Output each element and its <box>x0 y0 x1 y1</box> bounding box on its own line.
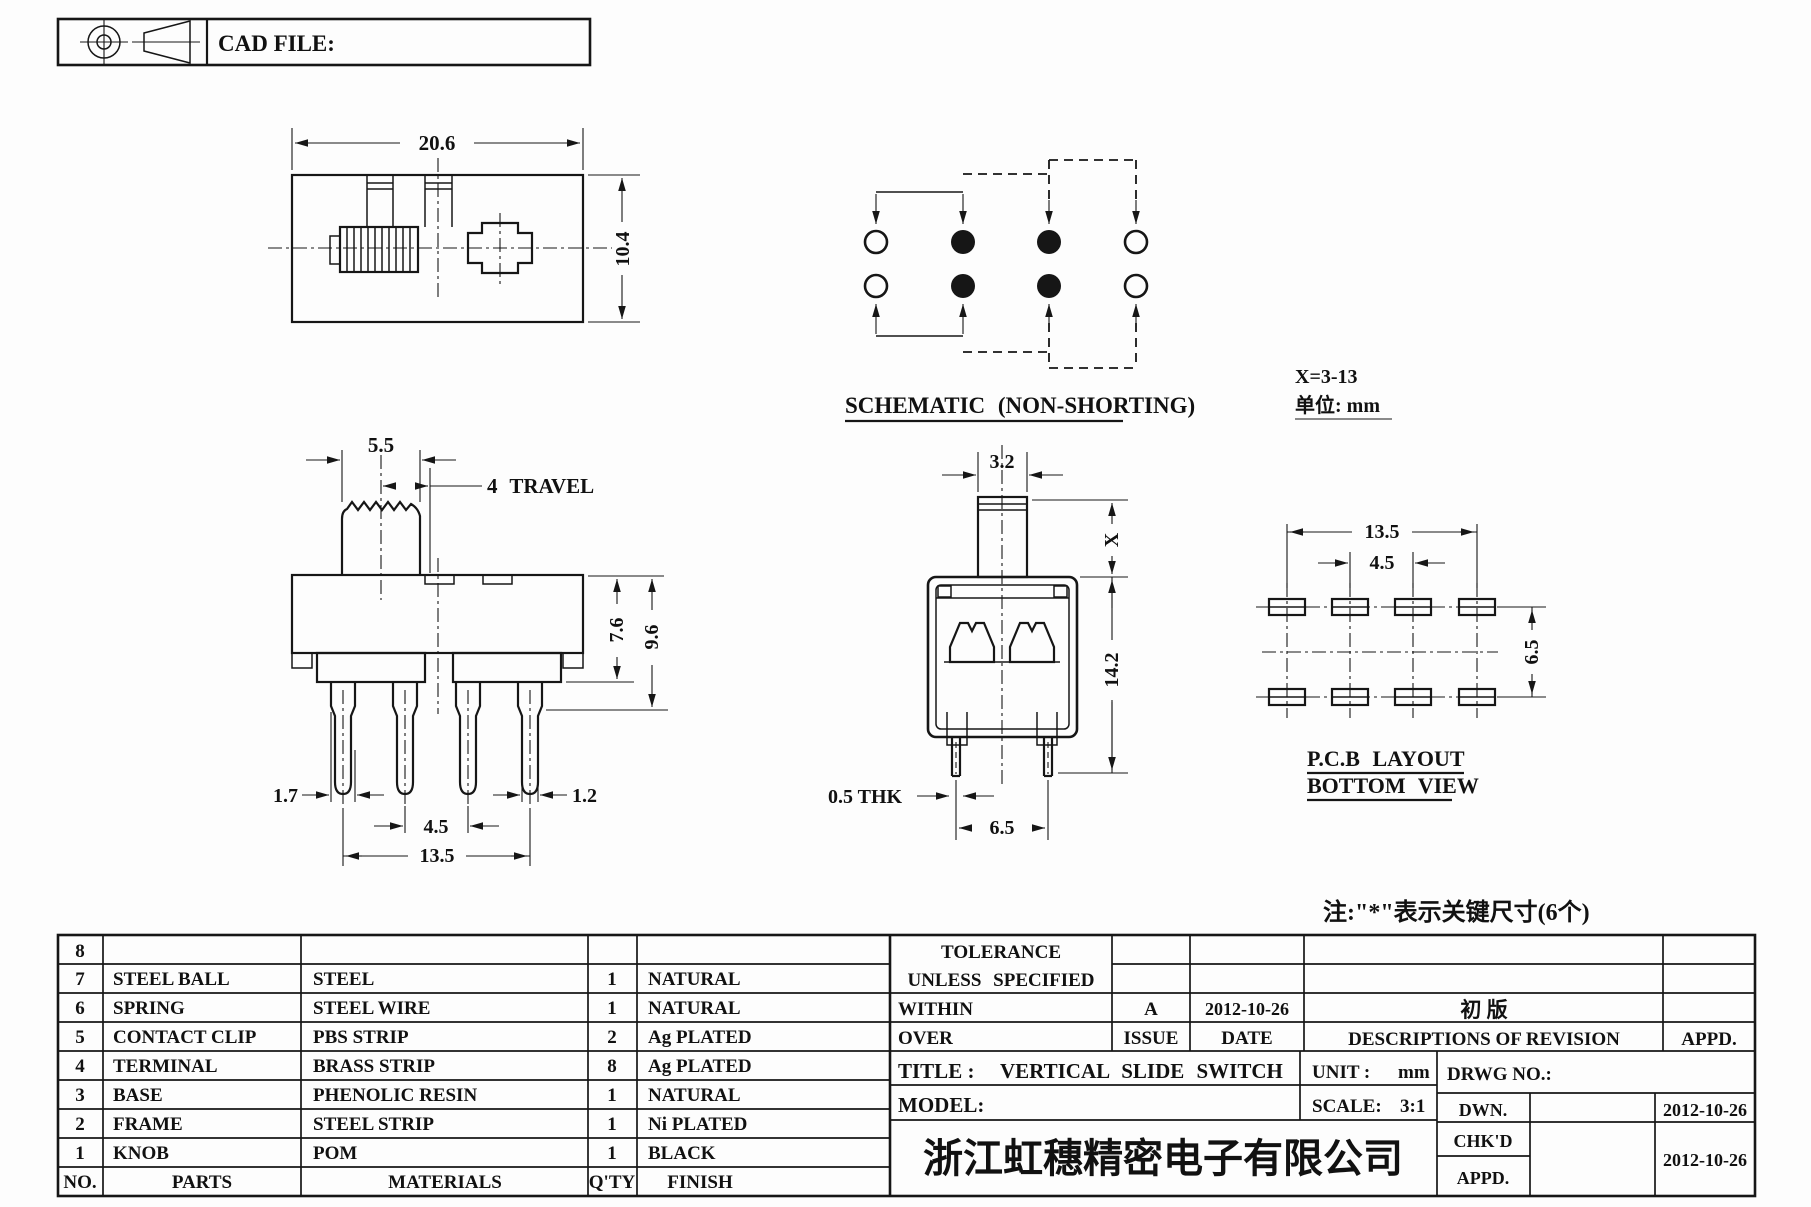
header-materials: MATERIALS <box>388 1172 502 1193</box>
header-parts: PARTS <box>172 1172 232 1193</box>
cell-finish: NATURAL <box>648 1085 741 1106</box>
table-row: 2 FRAME STEEL STRIP 1 Ni PLATED <box>75 1114 747 1135</box>
dim-top-height: 10.4 <box>612 232 634 267</box>
actuator-slot <box>367 175 452 227</box>
table-header-row: NO. PARTS MATERIALS Q'TY FINISH <box>63 1172 733 1193</box>
cell-finish: NATURAL <box>648 969 741 990</box>
title-value: VERTICAL SLIDE SWITCH <box>1000 1059 1283 1083</box>
title-label: TITLE : <box>898 1059 974 1083</box>
dim-knob-height-x: X <box>1101 532 1123 547</box>
parts-table: 8 7 STEEL BALL STEEL 1 NATURAL 6 SPRING … <box>63 941 751 1193</box>
chkd-label: CHK'D <box>1453 1131 1512 1151</box>
first-angle-projection-icon <box>80 20 200 64</box>
dim-travel: 4 TRAVEL <box>487 474 594 498</box>
unit-value: mm <box>1398 1062 1430 1083</box>
tolerance-within: WITHIN <box>898 999 973 1020</box>
tolerance-line2: UNLESS SPECIFIED <box>907 970 1094 991</box>
cell-no: 7 <box>75 969 85 990</box>
tolerance-over: OVER <box>898 1028 953 1049</box>
dim-side-pin-spacing: 6.5 <box>990 817 1015 839</box>
dim-pin-left: 1.7 <box>273 785 298 807</box>
cell-parts: BASE <box>113 1085 163 1106</box>
cell-qty: 1 <box>607 1143 617 1164</box>
model-label: MODEL: <box>898 1093 984 1117</box>
cell-parts: FRAME <box>113 1114 183 1135</box>
header-box: CAD FILE: <box>58 19 590 65</box>
revision-issue-value: A <box>1144 999 1158 1020</box>
pcb-title-line2: BOTTOM VIEW <box>1307 773 1479 798</box>
dim-body-height: 7.6 <box>606 618 628 643</box>
cell-no: 2 <box>75 1114 85 1135</box>
dwn-label: DWN. <box>1459 1100 1508 1120</box>
unit-label: UNIT : <box>1312 1062 1370 1083</box>
cell-finish: Ag PLATED <box>648 1056 752 1077</box>
table-row: 6 SPRING STEEL WIRE 1 NATURAL <box>75 998 740 1019</box>
cell-qty: 8 <box>607 1056 617 1077</box>
scale-label: SCALE: <box>1312 1096 1382 1117</box>
cell-parts: CONTACT CLIP <box>113 1027 257 1048</box>
cell-materials: STEEL WIRE <box>313 998 430 1019</box>
table-row: 4 TERMINAL BRASS STRIP 8 Ag PLATED <box>75 1056 751 1077</box>
schematic-terminals <box>865 230 1147 298</box>
appd-label: APPD. <box>1457 1168 1510 1188</box>
cell-no: 4 <box>75 1056 85 1077</box>
engineering-drawing-sheet: CAD FILE: 20.6 <box>0 0 1811 1207</box>
tolerance-line1: TOLERANCE <box>941 942 1061 963</box>
cell-finish: NATURAL <box>648 998 741 1019</box>
cell-qty: 1 <box>607 1114 617 1135</box>
cell-no: 6 <box>75 998 85 1019</box>
revision-description: 初 版 <box>1460 998 1507 1022</box>
unit-note: 单位: mm <box>1295 393 1380 417</box>
cell-qty: 1 <box>607 1085 617 1106</box>
dim-terminal-thickness: 0.5 THK <box>828 786 903 808</box>
revision-header: DESCRIPTIONS OF REVISION <box>1348 1029 1620 1050</box>
title-block: TOLERANCE UNLESS SPECIFIED WITHIN OVER A… <box>898 942 1747 1188</box>
dim-pcb-row-spacing: 6.5 <box>1521 640 1543 665</box>
cell-materials: PHENOLIC RESIN <box>313 1085 477 1106</box>
cell-parts: SPRING <box>113 998 185 1019</box>
cell-no: 3 <box>75 1085 85 1106</box>
table-row: 1 KNOB POM 1 BLACK <box>75 1143 716 1164</box>
table-row: 5 CONTACT CLIP PBS STRIP 2 Ag PLATED <box>75 1027 751 1048</box>
cell-materials: STEEL <box>313 969 374 990</box>
revision-issue-label: ISSUE <box>1124 1028 1179 1049</box>
dim-pin-span: 13.5 <box>420 845 455 867</box>
cell-parts: STEEL BALL <box>113 969 230 990</box>
dim-knob-width: 5.5 <box>368 433 394 457</box>
table-row: 8 <box>75 941 85 962</box>
schematic-title: SCHEMATIC (NON-SHORTING) <box>845 393 1195 418</box>
header-qty: Q'TY <box>589 1172 636 1193</box>
table-row: 3 BASE PHENOLIC RESIN 1 NATURAL <box>75 1085 740 1106</box>
cell-qty: 2 <box>607 1027 617 1048</box>
table-row: 7 STEEL BALL STEEL 1 NATURAL <box>75 969 740 990</box>
front-pins <box>331 682 542 805</box>
revision-appd-header: APPD. <box>1681 1029 1736 1050</box>
company-name: 浙江虹穗精密电子有限公司 <box>923 1136 1403 1182</box>
header-finish: FINISH <box>667 1172 733 1193</box>
cell-no: 1 <box>75 1143 85 1164</box>
cell-finish: Ag PLATED <box>648 1027 752 1048</box>
dwn-date: 2012-10-26 <box>1663 1100 1747 1120</box>
top-view: 20.6 10.4 <box>268 128 640 322</box>
dim-pin-right: 1.2 <box>572 785 597 807</box>
cell-materials: POM <box>313 1143 357 1164</box>
drawing-canvas: CAD FILE: 20.6 <box>0 0 1811 1207</box>
cell-finish: Ni PLATED <box>648 1114 747 1135</box>
dim-pcb-pitch: 4.5 <box>1370 552 1395 574</box>
cell-qty: 1 <box>607 969 617 990</box>
scale-value: 3:1 <box>1400 1096 1425 1117</box>
cell-no: 5 <box>75 1027 85 1048</box>
side-view: 3.2 X <box>828 445 1128 840</box>
cell-materials: STEEL STRIP <box>313 1114 434 1135</box>
revision-date-label: DATE <box>1221 1028 1272 1049</box>
key-dimension-note: 注:"*"表示关键尺寸(6个) <box>1323 898 1590 926</box>
dim-pcb-span: 13.5 <box>1365 521 1400 543</box>
cell-materials: BRASS STRIP <box>313 1056 435 1077</box>
schematic-view: SCHEMATIC (NON-SHORTING) X=3-13 单位: mm <box>845 160 1392 421</box>
revision-date-value: 2012-10-26 <box>1205 999 1289 1019</box>
cell-parts: TERMINAL <box>113 1056 218 1077</box>
cell-qty: 1 <box>607 998 617 1019</box>
cell-no: 8 <box>75 941 85 962</box>
x-range-note: X=3-13 <box>1295 366 1358 388</box>
schematic-dashed-position <box>963 160 1136 368</box>
cell-parts: KNOB <box>113 1143 169 1164</box>
pcb-layout-view: 13.5 4.5 6.5 P.C.B LAYOUT BOTTOM VIEW <box>1256 521 1546 800</box>
pcb-title-line1: P.C.B LAYOUT <box>1307 746 1465 771</box>
cell-finish: BLACK <box>648 1143 716 1164</box>
header-no: NO. <box>63 1172 96 1193</box>
drwg-no-label: DRWG NO.: <box>1447 1064 1552 1085</box>
dim-overall-height: 9.6 <box>641 625 663 650</box>
knob-ribs <box>347 227 410 272</box>
chkd-date: 2012-10-26 <box>1663 1150 1747 1170</box>
dim-top-width: 20.6 <box>419 131 456 155</box>
dim-pin-pitch: 4.5 <box>424 816 449 838</box>
cell-materials: PBS STRIP <box>313 1027 409 1048</box>
cad-file-label: CAD FILE: <box>218 31 335 56</box>
dim-side-body-height: 14.2 <box>1101 653 1123 688</box>
front-view: 5.5 4 TRAVEL <box>273 433 668 867</box>
